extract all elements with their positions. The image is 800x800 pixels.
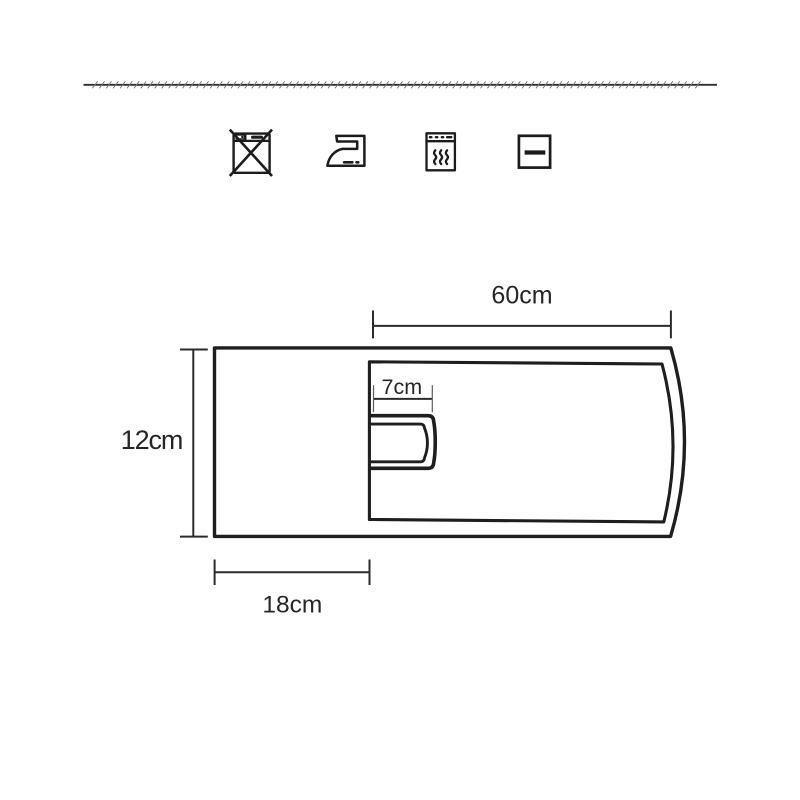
svg-text:18cm: 18cm [262, 592, 322, 619]
svg-text:60cm: 60cm [491, 282, 552, 310]
svg-text:12cm: 12cm [121, 425, 183, 455]
svg-text:7cm: 7cm [381, 375, 422, 399]
